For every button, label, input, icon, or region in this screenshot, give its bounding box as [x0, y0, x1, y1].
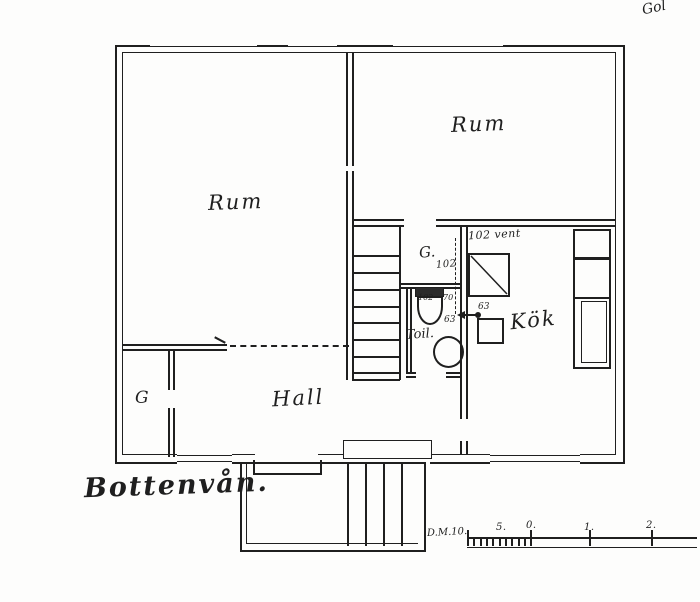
kitchen-sink-cabinet: [477, 318, 504, 344]
stair-tread: [353, 339, 399, 341]
vent-shaft-diagonal: [470, 255, 508, 295]
floor-plan-sheet: Rum Rum Hall Kök Toil. G G. 102 vent 102…: [0, 0, 700, 602]
stair-tread: [353, 255, 399, 257]
scale-minor-tick: [511, 537, 513, 546]
wall-hall-closet-east-a: [168, 349, 175, 390]
window-bottom-kitchen: [490, 455, 580, 462]
porch-step-line: [401, 464, 403, 546]
room-label-left: Rum: [208, 189, 264, 215]
upper-closet-label: G.: [418, 242, 436, 261]
window-hall-sill: [343, 440, 432, 459]
kitchen-label: Kök: [509, 306, 558, 335]
kitchen-counter-1: [573, 229, 611, 259]
scale-major-tick: [651, 530, 653, 546]
sink-leader-arrowhead: [457, 311, 465, 319]
scale-bar-label: D.M.10.: [427, 526, 468, 539]
basin-size-annotation: 63: [444, 315, 455, 325]
hall-label: Hall: [271, 385, 324, 412]
stair-right-edge: [399, 226, 401, 380]
porch-step-line: [347, 464, 349, 546]
wall-left-room-east-upper: [346, 52, 354, 166]
scale-tick-label-1: 1.: [584, 522, 595, 533]
scale-minor-tick: [499, 537, 501, 546]
window-top-right: [393, 46, 503, 53]
kitchen-counter-3-inner: [581, 301, 607, 363]
wc-depth-annotation: 70: [443, 293, 453, 302]
scale-minor-tick: [505, 537, 507, 546]
vent-duct-dashed-line: [455, 238, 456, 314]
hall-closet-label: G: [135, 388, 149, 408]
wash-basin: [433, 336, 464, 368]
sink-leader-line: [463, 314, 477, 316]
window-top-left-b: [288, 46, 337, 53]
corner-note: Gol: [641, 0, 668, 18]
scale-bar-band: [467, 537, 697, 548]
wall-toilet-south-b: [446, 372, 460, 378]
wc-width-annotation: 102: [418, 293, 433, 302]
vent-shaft-box: [468, 253, 510, 297]
wall-kitchen-west-lower: [460, 441, 468, 455]
wall-kitchen-west-upper: [460, 226, 468, 419]
stair-tread: [353, 372, 399, 374]
sink-size-annotation: 63: [478, 302, 489, 312]
wall-right-room-south-a: [352, 219, 404, 227]
outer-wall-inner-line: [122, 52, 616, 455]
closet-duct-annotation: 102: [436, 258, 457, 271]
scale-major-tick: [467, 530, 469, 546]
scale-tick-label-0: 0.: [526, 520, 537, 531]
stair-tread: [353, 356, 399, 358]
scale-minor-tick: [492, 537, 494, 546]
wall-hall-closet-east-b: [168, 408, 175, 457]
wall-toilet-south-a: [406, 372, 416, 378]
scale-minor-tick: [473, 537, 475, 546]
scale-minor-tick: [524, 537, 526, 546]
stair-tread: [353, 306, 399, 308]
porch-step-line: [365, 464, 367, 546]
stair-tread: [353, 272, 399, 274]
window-bottom-left: [177, 455, 232, 462]
scale-minor-tick: [480, 537, 482, 546]
kitchen-counter-2: [573, 258, 611, 299]
stair-tread: [353, 289, 399, 291]
vent-annotation: 102 vent: [468, 227, 521, 243]
drawing-title: Bottenvån.: [84, 467, 270, 504]
scale-minor-tick: [518, 537, 520, 546]
stair-tread: [353, 322, 399, 324]
scale-major-tick: [530, 530, 532, 546]
scale-tick-label-5: 5.: [496, 522, 507, 533]
window-top-left-a: [150, 46, 257, 53]
stair-bottom-edge: [352, 379, 400, 381]
toilet-label: Toil.: [406, 326, 435, 343]
porch-step-line: [383, 464, 385, 546]
scale-tick-label-2: 2.: [646, 520, 657, 531]
porch-inner-line: [246, 462, 418, 544]
opening-dashed-line: [230, 345, 349, 347]
wall-left-room-east-lower: [346, 171, 354, 380]
room-label-right: Rum: [451, 111, 507, 137]
scale-minor-tick: [486, 537, 488, 546]
